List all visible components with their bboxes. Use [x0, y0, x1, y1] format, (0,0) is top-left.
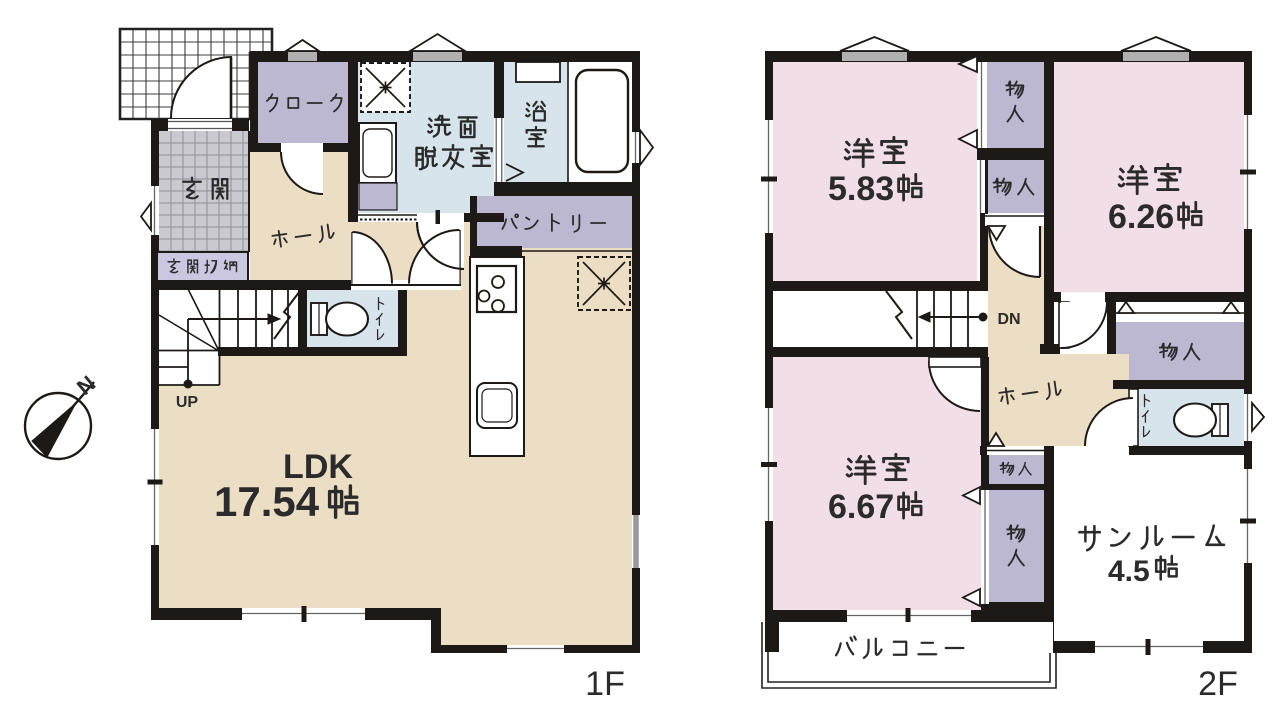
svg-text:UP: UP	[176, 394, 199, 411]
svg-text:6.67: 6.67	[828, 488, 894, 526]
svg-text:2F: 2F	[1198, 665, 1238, 703]
svg-text:4.5: 4.5	[1108, 555, 1150, 588]
svg-text:1F: 1F	[585, 665, 625, 703]
svg-text:5.83: 5.83	[828, 170, 894, 208]
svg-text:17.54: 17.54	[214, 478, 320, 525]
svg-text:6.26: 6.26	[1108, 198, 1174, 236]
svg-text:DN: DN	[997, 311, 1020, 328]
